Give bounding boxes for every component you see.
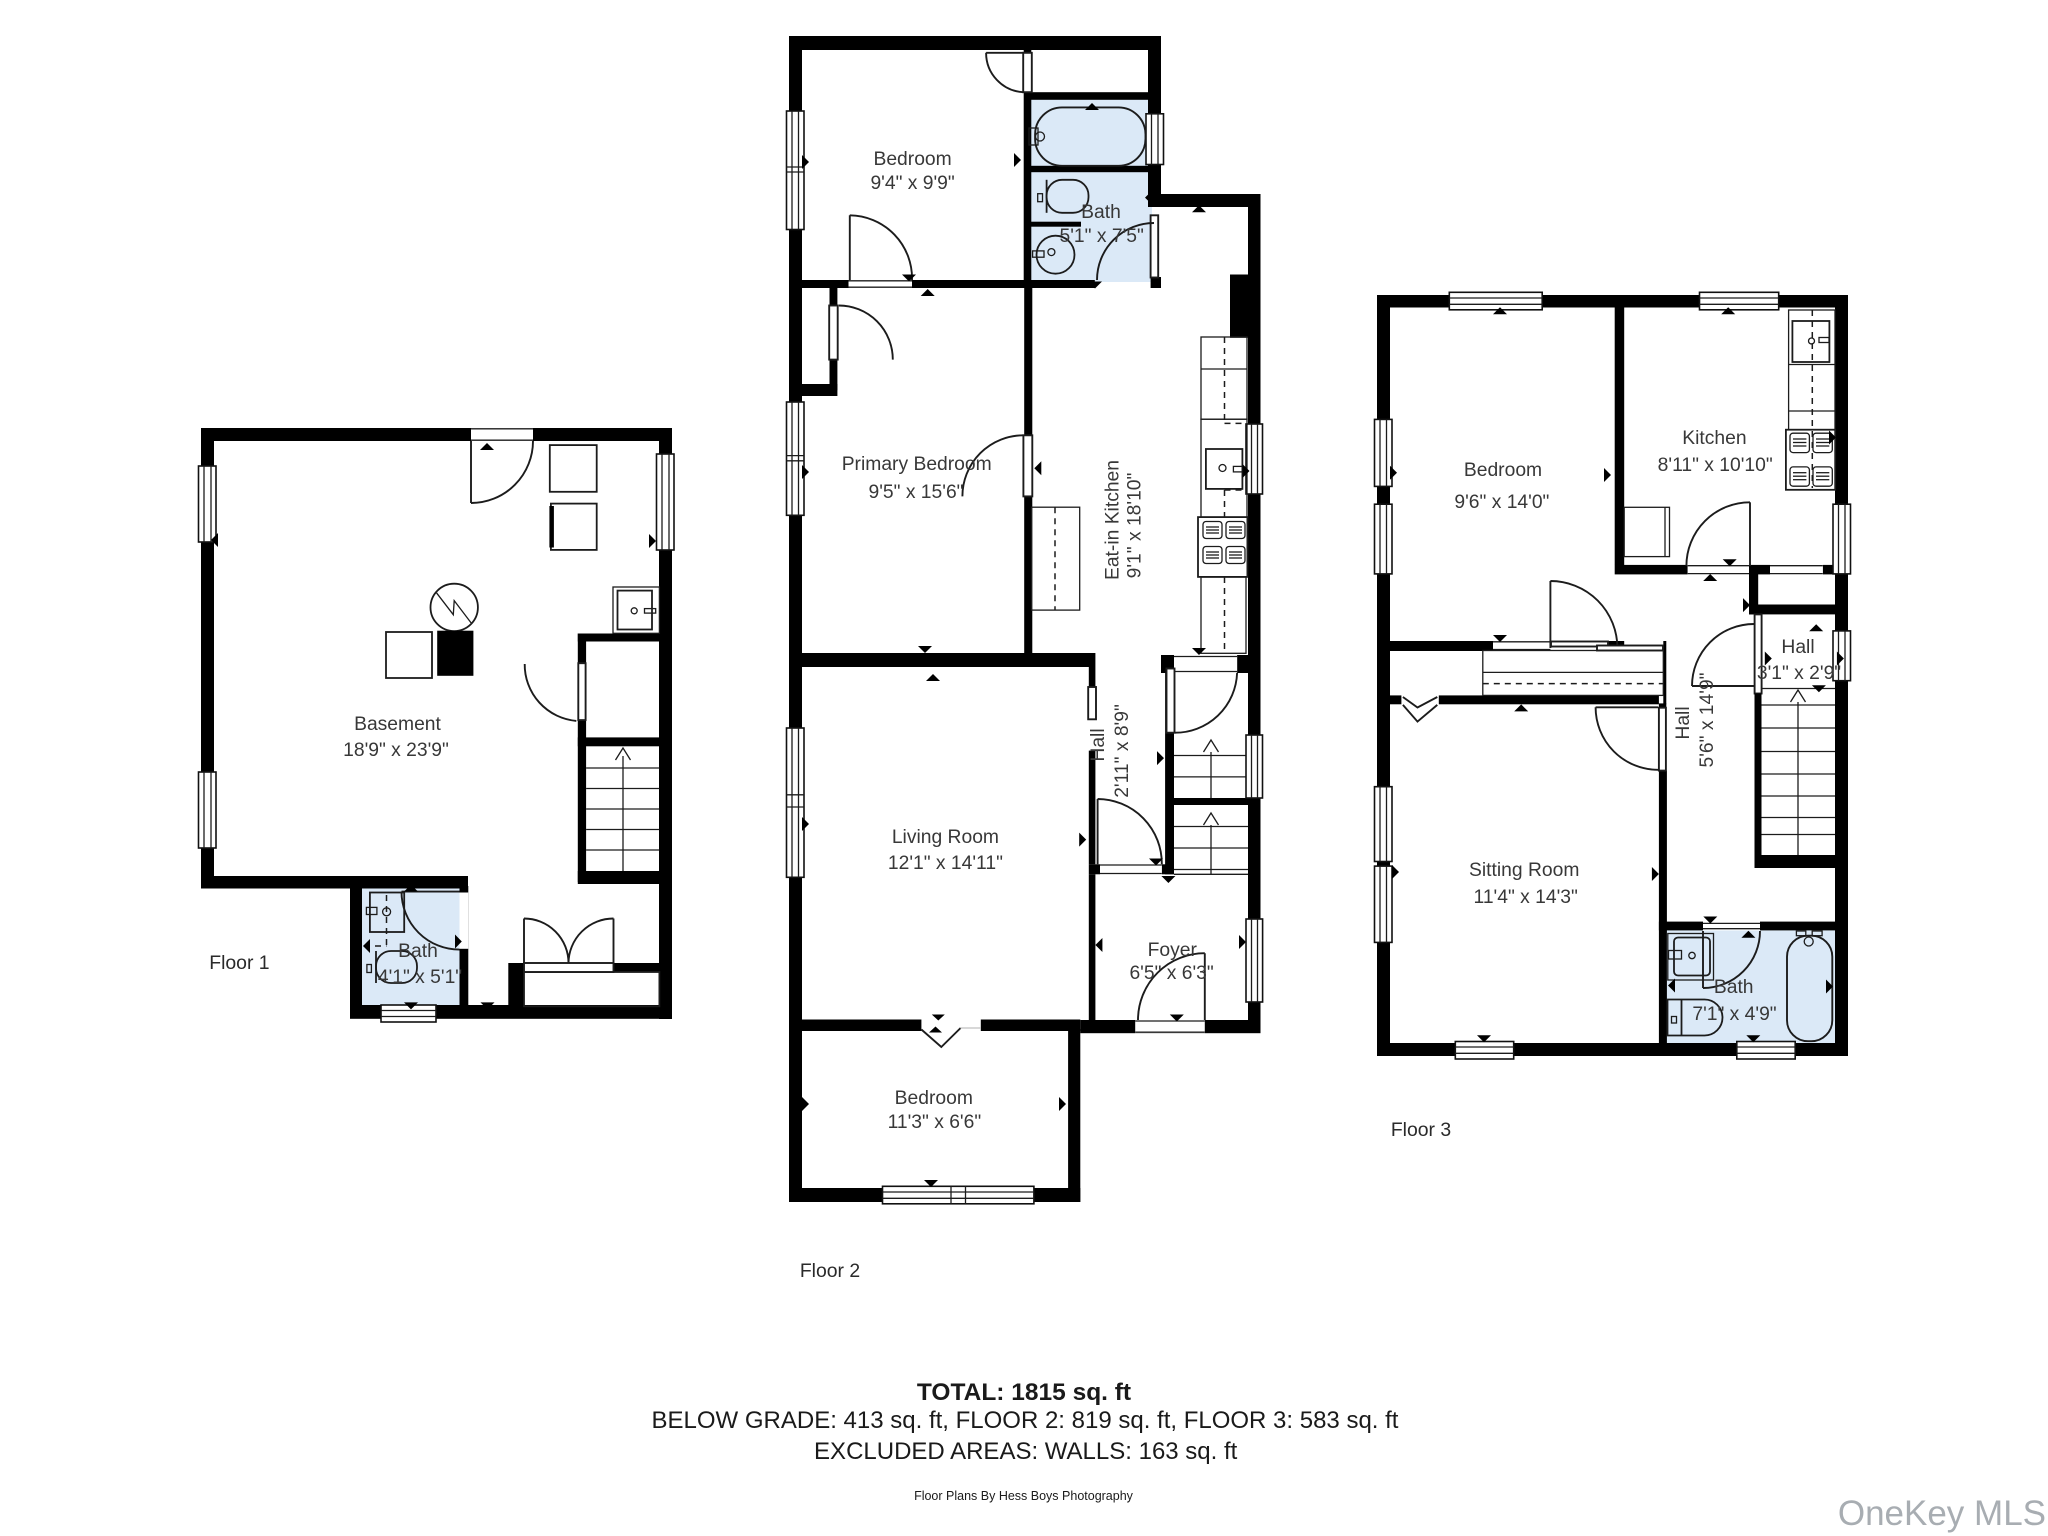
svg-text:11'3" x 6'6": 11'3" x 6'6" (888, 1112, 982, 1133)
svg-text:BELOW GRADE: 413 sq. ft, FLOOR: BELOW GRADE: 413 sq. ft, FLOOR 2: 819 sq… (652, 1407, 1399, 1434)
svg-text:Hall: Hall (1088, 728, 1109, 761)
svg-text:2'11" x 8'9": 2'11" x 8'9" (1112, 704, 1133, 798)
svg-text:9'6" x 14'0": 9'6" x 14'0" (1454, 492, 1549, 513)
svg-text:Foyer: Foyer (1148, 940, 1198, 961)
svg-text:Sitting Room: Sitting Room (1469, 860, 1579, 881)
svg-text:Hall: Hall (1673, 706, 1694, 739)
svg-text:Bedroom: Bedroom (895, 1088, 973, 1109)
svg-text:Bath: Bath (398, 941, 438, 962)
svg-text:12'1" x 14'11": 12'1" x 14'11" (888, 853, 1003, 874)
svg-text:Primary Bedroom: Primary Bedroom (842, 454, 992, 475)
svg-text:5'6" x 14'9": 5'6" x 14'9" (1697, 672, 1718, 767)
svg-text:Bedroom: Bedroom (1464, 460, 1542, 481)
svg-text:4'1" x 5'1": 4'1" x 5'1" (378, 967, 462, 988)
svg-text:5'1" x 7'5": 5'1" x 7'5" (1060, 226, 1144, 247)
svg-text:9'5" x 15'6": 9'5" x 15'6" (868, 482, 963, 503)
svg-text:TOTAL: 1815 sq. ft: TOTAL: 1815 sq. ft (917, 1379, 1131, 1406)
svg-text:7'1" x 4'9": 7'1" x 4'9" (1692, 1004, 1776, 1025)
svg-text:Kitchen: Kitchen (1682, 428, 1746, 449)
svg-text:OneKey MLS: OneKey MLS (1838, 1494, 2046, 1533)
svg-text:6'5" x 6'3": 6'5" x 6'3" (1129, 963, 1213, 984)
svg-text:Floor 1: Floor 1 (209, 952, 269, 974)
svg-text:Basement: Basement (354, 714, 441, 735)
svg-text:Eat-in Kitchen: Eat-in Kitchen (1103, 460, 1124, 580)
svg-text:8'11" x 10'10": 8'11" x 10'10" (1658, 455, 1773, 476)
svg-text:Floor 2: Floor 2 (800, 1260, 860, 1282)
svg-text:Floor Plans By Hess Boys Photo: Floor Plans By Hess Boys Photography (914, 1489, 1134, 1503)
svg-text:Bath: Bath (1714, 977, 1754, 998)
svg-text:9'1" x 18'10": 9'1" x 18'10" (1124, 472, 1145, 578)
svg-text:9'4" x 9'9": 9'4" x 9'9" (870, 173, 954, 194)
svg-text:Living Room: Living Room (892, 827, 999, 848)
svg-text:Bedroom: Bedroom (873, 149, 951, 170)
svg-text:Floor 3: Floor 3 (1391, 1119, 1451, 1141)
svg-text:3'1" x 2'9": 3'1" x 2'9" (1757, 663, 1841, 684)
svg-text:Bath: Bath (1081, 202, 1121, 223)
svg-text:EXCLUDED AREAS: WALLS: 163 sq.: EXCLUDED AREAS: WALLS: 163 sq. ft (814, 1438, 1238, 1465)
svg-text:18'9" x 23'9": 18'9" x 23'9" (343, 740, 449, 761)
svg-text:11'4" x 14'3": 11'4" x 14'3" (1474, 887, 1578, 908)
svg-text:Hall: Hall (1781, 637, 1814, 658)
